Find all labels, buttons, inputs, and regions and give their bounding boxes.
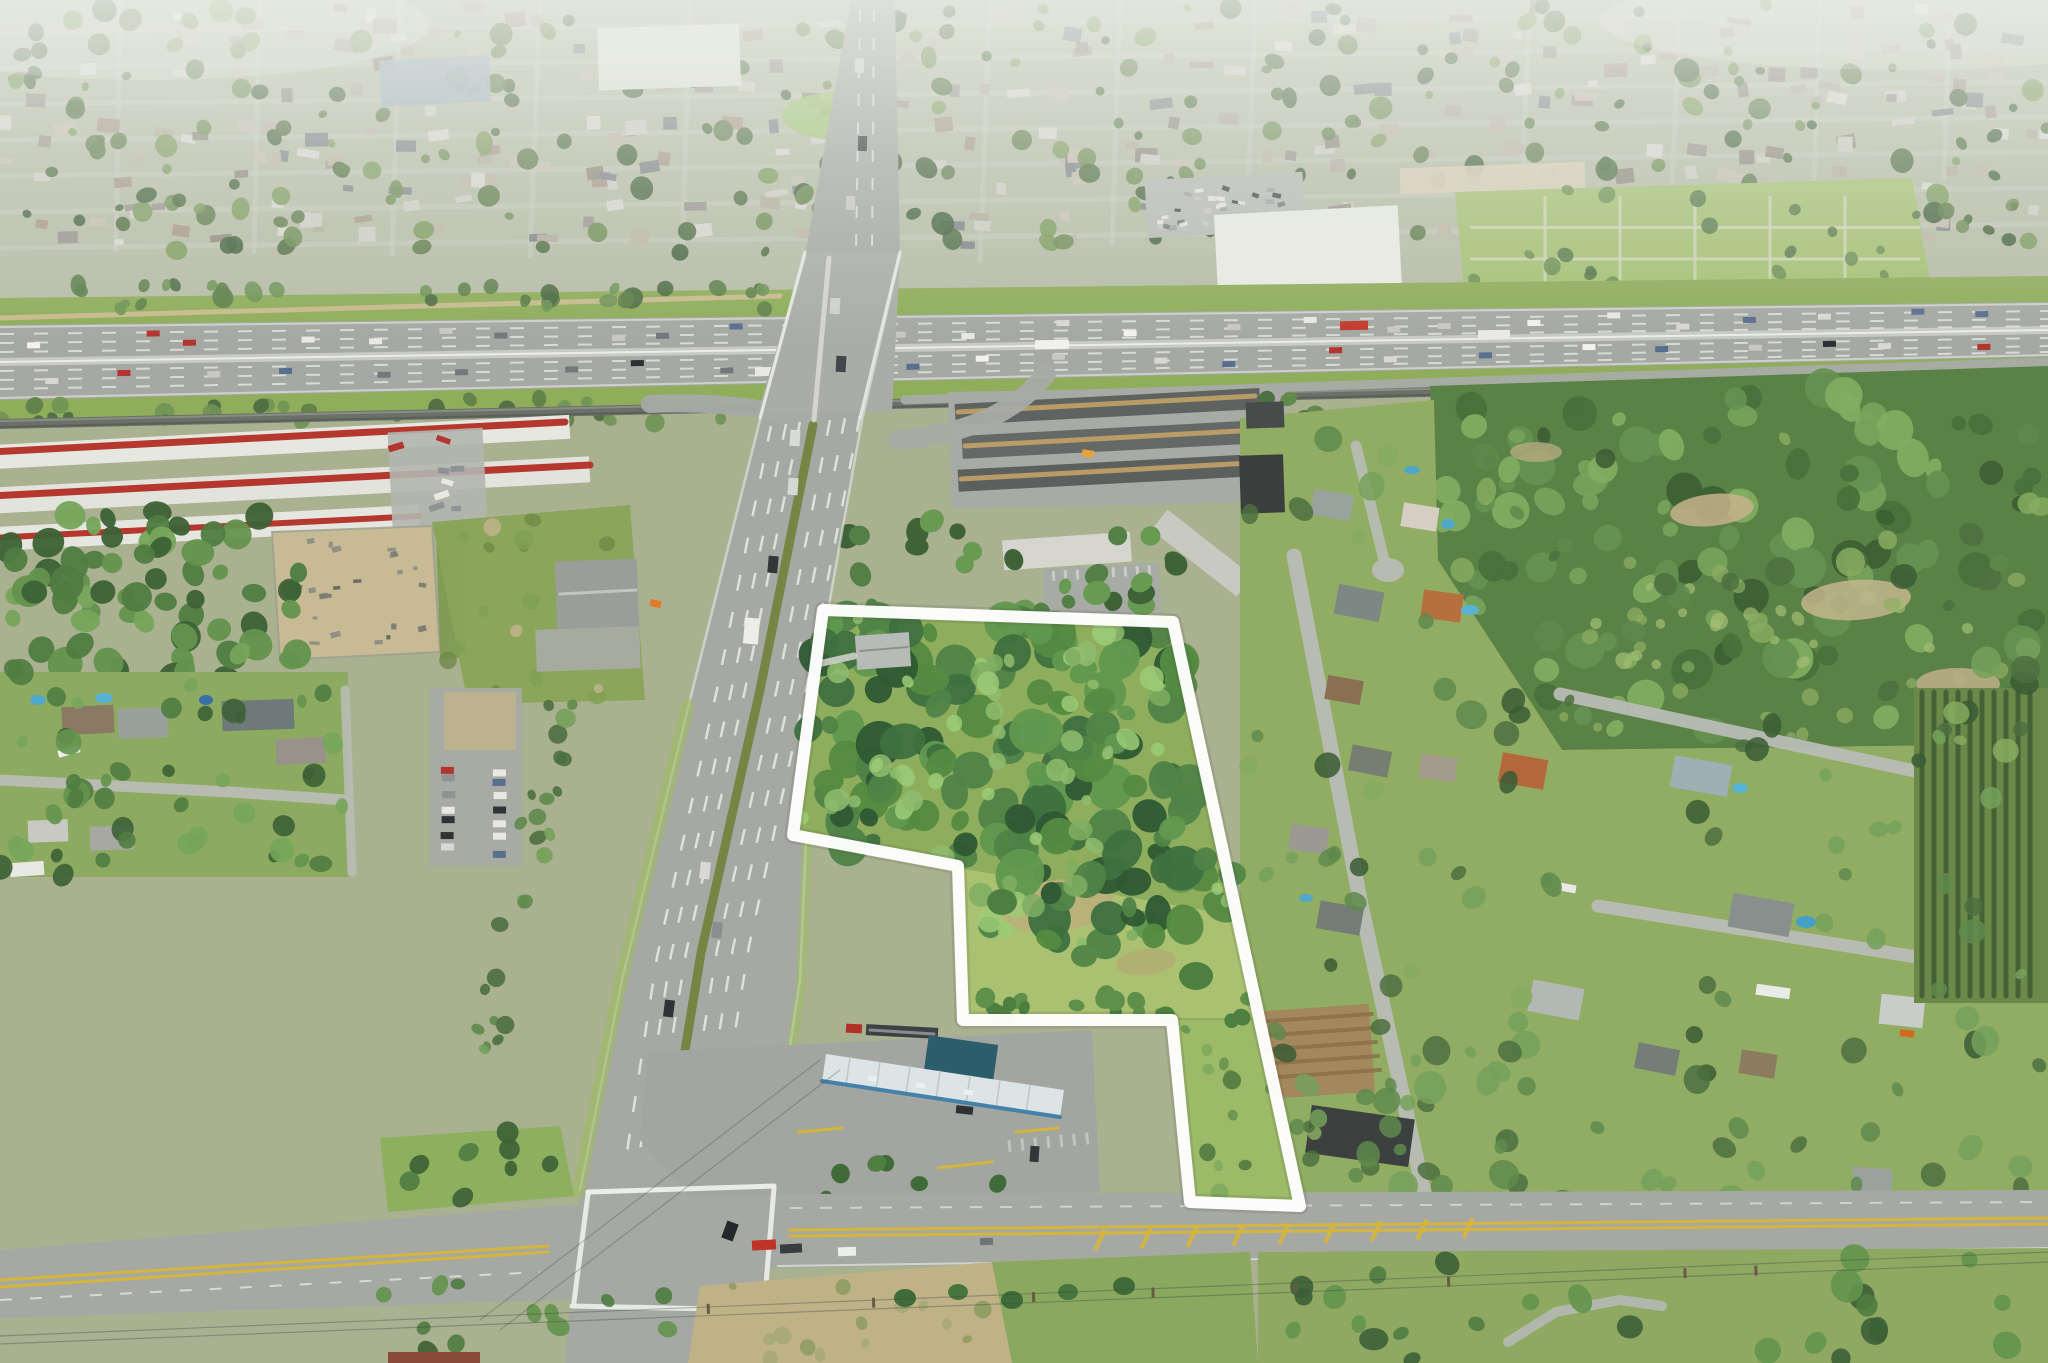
house-r11 (1419, 754, 1458, 783)
pocket-pool-1 (30, 695, 46, 705)
parcel-tree-canopy-148 (1142, 923, 1165, 948)
residential-right-trees-78 (1993, 739, 2019, 763)
utility-poles-2 (1032, 1292, 1035, 1302)
pool-3 (1299, 894, 1313, 902)
substation-equipment-20 (333, 586, 340, 590)
atmospheric-haze (0, 0, 2048, 340)
parked-row-1-1 (442, 774, 455, 781)
parked-row-1-2 (442, 791, 455, 798)
parked-row-1-6 (441, 843, 454, 850)
substation-equipment-1 (353, 579, 361, 583)
pool-1 (1441, 519, 1455, 529)
hw-traffic-eb-2 (207, 371, 220, 377)
aerial-photo-figure (0, 0, 2048, 1363)
hw-traffic-eb-12 (1052, 354, 1065, 360)
substation-equipment-18 (413, 566, 417, 570)
car-a16 (789, 430, 800, 447)
hw-traffic-eb-6 (565, 366, 578, 372)
hw-traffic-eb-11 (976, 356, 989, 362)
parked-row-2-5 (493, 833, 506, 840)
car-east-leg (980, 1238, 993, 1245)
parked-row-2-1 (493, 779, 506, 786)
westside-dirt-lot (444, 692, 516, 750)
meadow-tree-3 (1179, 962, 1213, 990)
parcel-canopy-highlights-29 (1151, 743, 1165, 756)
aerial-photograph (0, 0, 2048, 1363)
sw-red-roof-strip (388, 1352, 480, 1363)
red-pickup (752, 1239, 776, 1250)
white-van (838, 1247, 856, 1257)
substation-equipment-21 (313, 616, 318, 619)
apartment-dark-2 (1246, 401, 1285, 428)
orange-sports-car (1900, 1029, 1915, 1037)
parked-row-2-2 (494, 792, 507, 799)
pool-2 (1461, 605, 1479, 615)
pocket-rv (10, 861, 45, 877)
car-a5 (711, 922, 723, 939)
car-a15 (836, 356, 847, 373)
utility-poles-0 (707, 1304, 710, 1314)
apartment-dark-1 (1239, 454, 1285, 514)
substation-equipment-17 (391, 623, 396, 629)
utility-poles-7 (1754, 1265, 1757, 1275)
substation-equipment-5 (319, 593, 328, 600)
hw-traffic-eb-8 (720, 367, 733, 373)
hw-traffic-eb-10 (906, 364, 919, 370)
hw-traffic-eb-0 (45, 378, 58, 384)
storage-yard-trucks-5 (451, 506, 461, 512)
hw-traffic-eb-14 (1222, 361, 1235, 367)
car-a3 (767, 556, 778, 574)
parked-row-1-5 (441, 832, 454, 839)
substation-equipment-9 (374, 640, 382, 645)
south-trees-16 (1359, 1328, 1388, 1350)
hw-traffic-eb-23 (1977, 344, 1990, 350)
semi-truck-1 (1035, 340, 1069, 350)
utility-poles-5 (1447, 1277, 1450, 1287)
parked-row-2-0 (493, 769, 506, 776)
pocket-house-4 (275, 737, 326, 766)
substation-equipment-19 (387, 548, 395, 552)
substation-equipment-12 (310, 641, 320, 645)
hw-traffic-eb-16 (1384, 356, 1397, 362)
utility-poles-1 (872, 1298, 875, 1308)
palm-2 (948, 1284, 968, 1300)
hw-traffic-eb-13 (1154, 357, 1167, 363)
station-car-2 (1029, 1146, 1039, 1163)
pocket-house-5 (28, 819, 69, 842)
meadow-tree-1 (987, 889, 1017, 915)
hw-traffic-eb-5 (455, 369, 468, 375)
culdesac-circle (1372, 558, 1404, 582)
rail-verge-trees-6 (532, 390, 546, 408)
utility-poles-4 (1294, 1282, 1297, 1292)
hw-traffic-eb-22 (1878, 343, 1891, 349)
hw-traffic-eb-15 (1329, 347, 1342, 353)
hw-traffic-eb-17 (1479, 352, 1492, 358)
hw-traffic-eb-21 (1823, 341, 1836, 347)
hw-traffic-eb-19 (1655, 346, 1668, 352)
palm-5 (1113, 1277, 1135, 1295)
pocket-trees-26 (309, 856, 332, 872)
hw-traffic-wb-2 (183, 340, 196, 346)
pocket-house-2 (117, 707, 168, 739)
hw-traffic-eb-3 (279, 368, 292, 374)
pool-5 (1732, 783, 1748, 793)
car-a6 (663, 999, 675, 1017)
utility-poles-3 (1151, 1287, 1154, 1297)
car-a2 (787, 478, 798, 496)
pocket-trampoline (199, 695, 213, 705)
meadow-tree-2 (1071, 945, 1097, 967)
substation-equipment-14 (386, 635, 390, 640)
utility-poles-6 (1683, 1268, 1686, 1278)
south-green-1 (992, 1252, 1258, 1363)
house-r9 (1288, 823, 1329, 854)
parked-row-1-0 (441, 767, 454, 774)
hw-traffic-wb-0 (27, 342, 40, 348)
parked-row-1-3 (442, 807, 455, 814)
parked-row-2-3 (493, 807, 506, 814)
hw-traffic-eb-20 (1749, 345, 1762, 351)
gas-station-pad (640, 1030, 1100, 1208)
parked-row-2-6 (493, 851, 506, 858)
parked-row-1-4 (442, 816, 455, 823)
hw-traffic-eb-7 (631, 360, 644, 366)
parked-row-2-4 (493, 820, 506, 827)
pickup-trailer (780, 1243, 802, 1253)
box-truck-white (743, 617, 760, 644)
pool-6 (1404, 466, 1420, 474)
pocket-pool-2 (95, 693, 113, 703)
commercial-apron (535, 626, 640, 672)
hw-traffic-eb-4 (377, 372, 390, 378)
hw-traffic-eb-1 (117, 370, 130, 376)
preserve-scrub-37 (1631, 650, 1643, 661)
car-a4 (699, 862, 711, 880)
pool-4 (1796, 916, 1816, 928)
storage-yard-trucks-2 (450, 466, 464, 472)
tanker-cab (846, 1024, 862, 1034)
preserve-sand-4 (1510, 442, 1562, 462)
hw-traffic-eb-18 (1582, 344, 1595, 350)
